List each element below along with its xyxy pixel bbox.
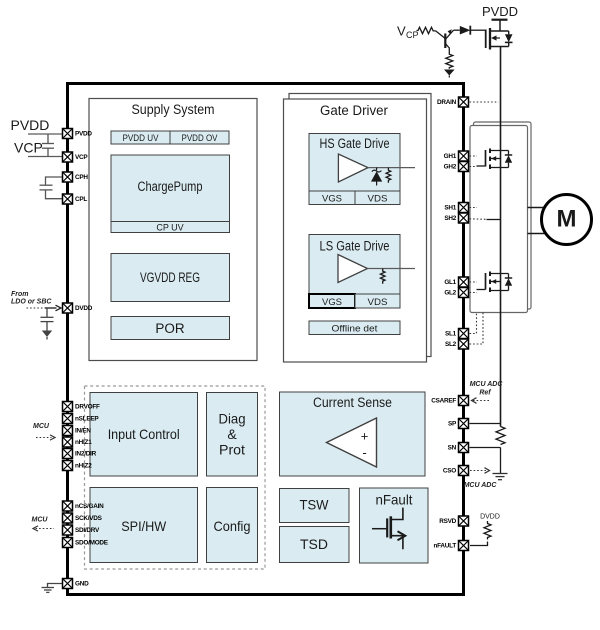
- svg-text:Ref: Ref: [479, 390, 491, 397]
- svg-text:DVDD: DVDD: [480, 514, 500, 521]
- svg-text:nFault: nFault: [376, 492, 413, 508]
- svg-text:CP UV: CP UV: [156, 223, 183, 233]
- svg-text:SCK/VDS: SCK/VDS: [75, 515, 103, 522]
- svg-text:ChargePump: ChargePump: [138, 179, 203, 194]
- svg-text:MCU: MCU: [32, 517, 49, 524]
- svg-text:SP: SP: [448, 421, 457, 428]
- svg-text:GH1: GH1: [444, 153, 457, 160]
- svg-text:HS Gate Drive: HS Gate Drive: [320, 136, 390, 151]
- svg-text:MCU: MCU: [33, 423, 50, 430]
- svg-text:GL1: GL1: [444, 279, 456, 286]
- svg-text:SH2: SH2: [444, 215, 456, 222]
- svg-text:Input Control: Input Control: [108, 426, 180, 442]
- svg-text:VCP: VCP: [75, 154, 88, 161]
- svg-text:SPI/HW: SPI/HW: [121, 518, 167, 534]
- svg-text:CPL: CPL: [75, 196, 87, 203]
- svg-text:nHIZ1: nHIZ1: [75, 439, 92, 446]
- svg-text:LS Gate Drive: LS Gate Drive: [320, 239, 390, 254]
- svg-text:PVDD: PVDD: [482, 4, 518, 19]
- svg-text:PVDD: PVDD: [11, 117, 50, 133]
- svg-text:Offline det: Offline det: [332, 323, 378, 334]
- svg-text:DRVOFF: DRVOFF: [75, 404, 100, 411]
- svg-text:Supply System: Supply System: [132, 102, 215, 117]
- svg-text:SDO/MODE: SDO/MODE: [75, 540, 109, 547]
- svg-text:MCU ADC: MCU ADC: [470, 381, 504, 388]
- svg-text:RSVD: RSVD: [439, 518, 456, 525]
- svg-text:LDO or SBC: LDO or SBC: [11, 299, 52, 306]
- svg-text:Diag: Diag: [219, 411, 246, 427]
- svg-text:nHIZ2: nHIZ2: [75, 463, 92, 470]
- svg-text:VGS: VGS: [322, 194, 342, 205]
- svg-text:POR: POR: [155, 321, 185, 336]
- svg-text:DVDD: DVDD: [75, 305, 93, 312]
- svg-text:CSAREF: CSAREF: [431, 398, 456, 405]
- svg-text:TSW: TSW: [300, 497, 330, 513]
- svg-text:Config: Config: [214, 518, 251, 534]
- svg-text:IN2/DIR: IN2/DIR: [75, 451, 97, 458]
- svg-text:-: -: [362, 445, 366, 460]
- svg-text:DRAIN: DRAIN: [437, 99, 457, 106]
- svg-text:GH2: GH2: [444, 164, 457, 171]
- svg-text:VGVDD REG: VGVDD REG: [140, 270, 200, 285]
- svg-text:PVDD OV: PVDD OV: [182, 133, 219, 144]
- svg-text:nFAULT: nFAULT: [433, 543, 456, 550]
- svg-text:VCP: VCP: [14, 140, 43, 156]
- svg-text:GL2: GL2: [444, 290, 456, 297]
- svg-text:VDS: VDS: [368, 194, 388, 205]
- svg-text:VGS: VGS: [322, 297, 342, 308]
- svg-text:nSLEEP: nSLEEP: [75, 416, 99, 423]
- svg-text:V: V: [397, 24, 406, 39]
- svg-text:&: &: [227, 426, 237, 442]
- svg-text:MCU ADC: MCU ADC: [464, 482, 498, 489]
- svg-text:VDS: VDS: [368, 297, 388, 308]
- svg-text:SH1: SH1: [444, 205, 456, 212]
- svg-text:SDI/DRV: SDI/DRV: [75, 527, 100, 534]
- svg-text:Gate Driver: Gate Driver: [320, 103, 388, 118]
- svg-text:CSO: CSO: [443, 468, 456, 475]
- svg-text:SN: SN: [448, 445, 457, 452]
- svg-text:CP: CP: [406, 30, 419, 40]
- svg-text:GND: GND: [75, 581, 89, 588]
- svg-text:M: M: [557, 206, 577, 233]
- svg-text:TSD: TSD: [300, 536, 328, 552]
- svg-text:+: +: [361, 429, 369, 444]
- svg-text:nCS/GAIN: nCS/GAIN: [75, 503, 104, 510]
- svg-text:SL2: SL2: [445, 341, 457, 348]
- svg-text:CPH: CPH: [75, 174, 88, 181]
- svg-text:PVDD: PVDD: [75, 131, 92, 138]
- svg-text:Current Sense: Current Sense: [313, 395, 392, 410]
- svg-text:Prot: Prot: [219, 442, 245, 458]
- svg-text:PVDD UV: PVDD UV: [123, 133, 160, 144]
- svg-text:SL1: SL1: [445, 331, 457, 338]
- svg-text:IN/EN: IN/EN: [75, 428, 91, 435]
- svg-text:From: From: [11, 291, 29, 298]
